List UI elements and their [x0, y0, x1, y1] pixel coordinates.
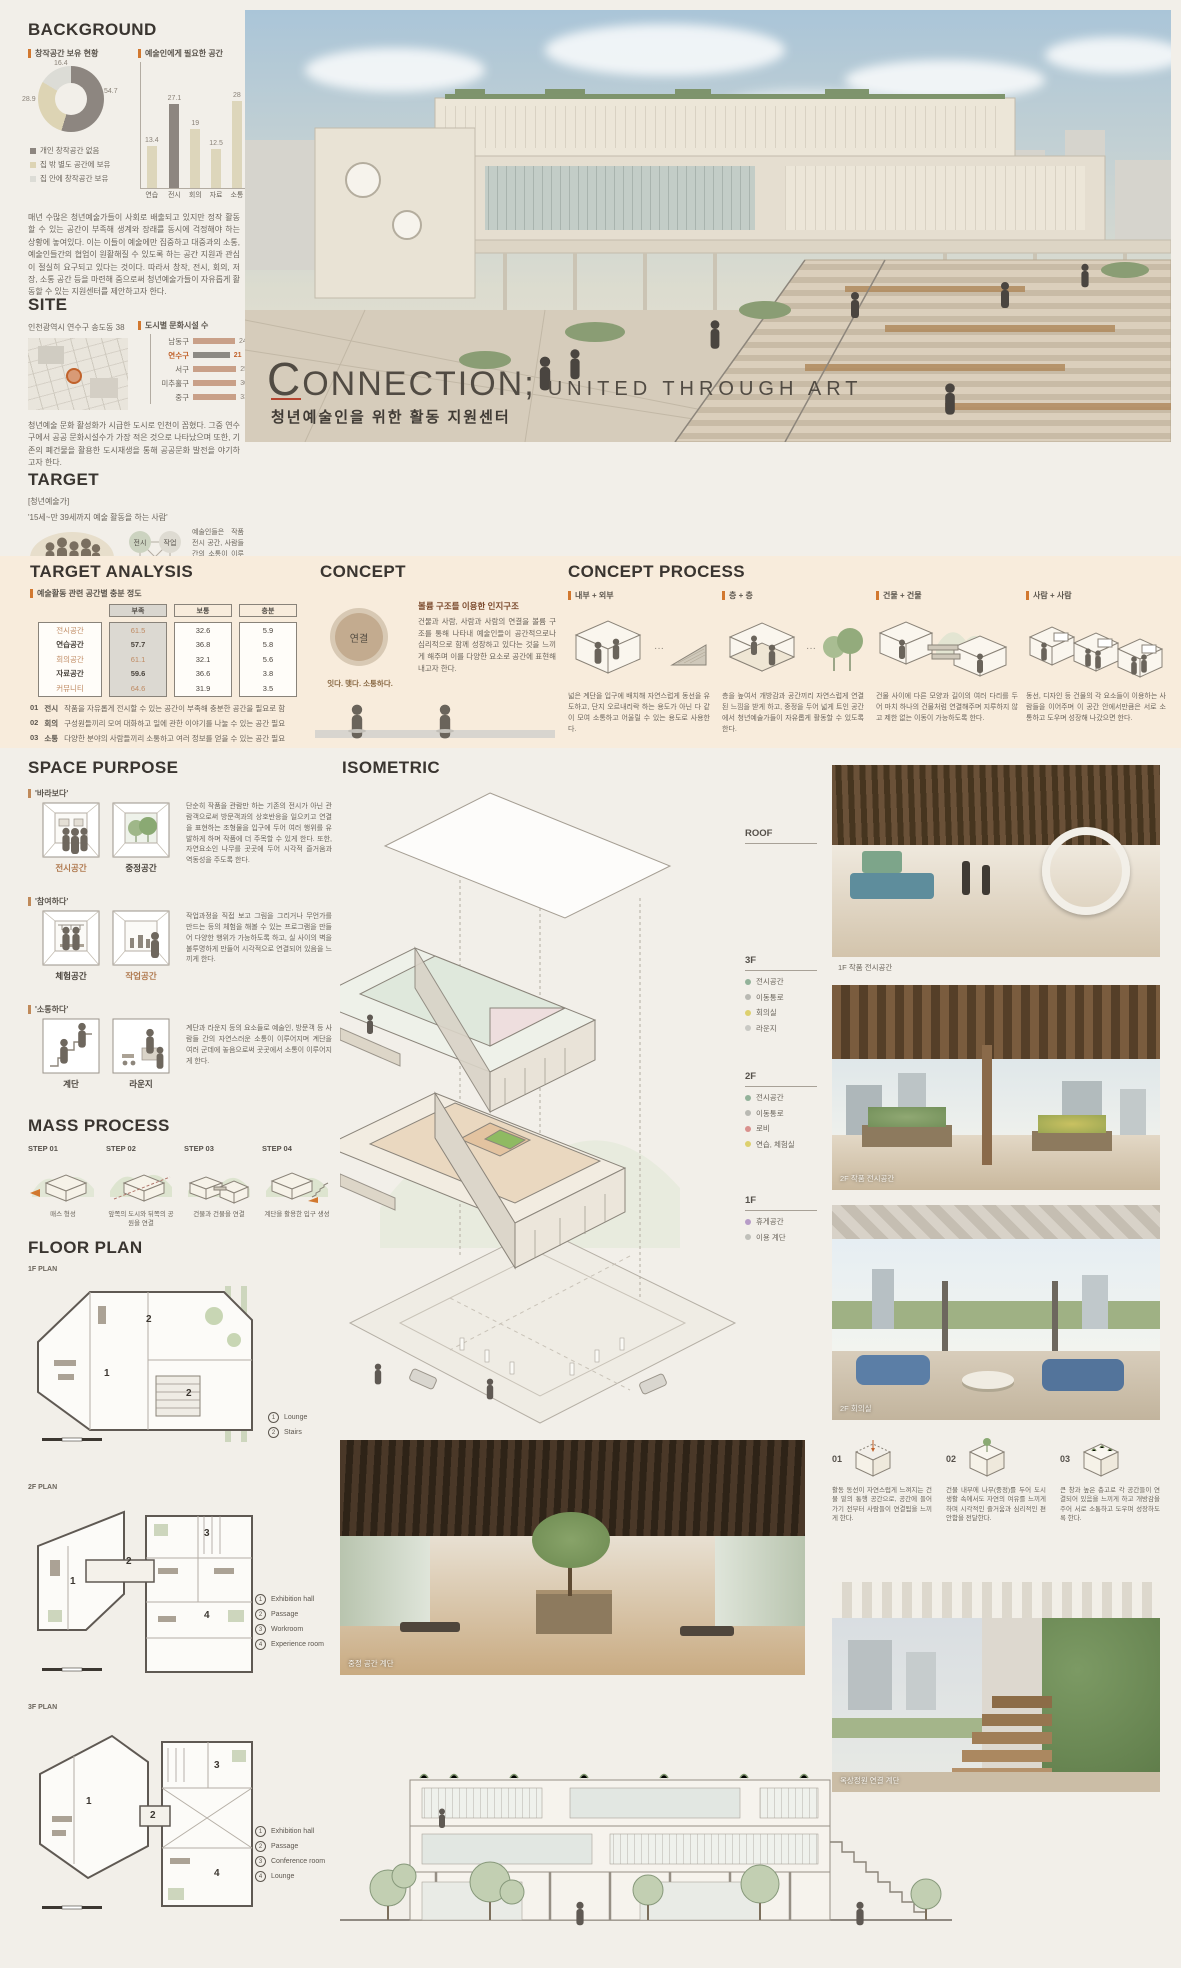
legend-dot-icon: [745, 1219, 751, 1225]
bar: [147, 146, 157, 188]
tree-cube-diagram: [964, 1438, 1010, 1480]
cp-item-inner-outer: 내부 + 외부 ··· 넓은 계단을 입구에 배치해 자연스럽게 동선을 유도하…: [568, 590, 710, 735]
plan-3f-legend: 1Exhibition hall2Passage3Conference room…: [255, 1822, 325, 1882]
legend-number-icon: 2: [268, 1427, 279, 1438]
table-value: 5.8: [240, 638, 296, 653]
label-bar-icon: [1026, 591, 1029, 600]
room-label: 작업공간: [112, 970, 170, 982]
table-value: 3.5: [240, 681, 296, 696]
center-render-caption: 중정 공간 계단: [348, 1658, 394, 1669]
bench: [680, 1626, 734, 1636]
ta-points: 01전시작품을 자유롭게 전시할 수 있는 공간이 부족해 충분한 공간을 필요…: [30, 700, 285, 744]
label-bar-icon: [28, 789, 31, 798]
mass-step-1-sketch: [28, 1153, 98, 1205]
plan-legend-item: 1Exhibition hall: [255, 1594, 324, 1605]
mass-step-4-sketch: [262, 1153, 332, 1205]
plan-2f-legend: 1Exhibition hall2Passage3Workroom4Experi…: [255, 1590, 324, 1650]
legend-dot-icon: [745, 1141, 751, 1147]
idea-caption: 건물 내부에 나무(중정)를 두어 도시 생활 속에서도 자연의 여유를 느끼게…: [946, 1486, 1046, 1524]
plan-mark: 2: [186, 1388, 192, 1399]
white-slat-ceiling: [832, 1582, 1160, 1618]
isometric-heading: ISOMETRIC: [342, 758, 440, 778]
plan-legend-item: 3Workroom: [255, 1624, 324, 1635]
bar-연습: 13.4연습: [145, 62, 159, 188]
legend-number-icon: 1: [255, 1826, 266, 1837]
concept-subtitle: 볼륨 구조를 이용한 인지구조: [418, 600, 558, 612]
cp-item-floor-floor: 층 + 층 ··· 층을 높여서 개방감과 공간끼리 자연스럽게 연결된 느낌을…: [722, 590, 864, 735]
legend-dot-icon: [745, 979, 751, 985]
plan-3f: 1 2 3 4: [28, 1718, 260, 1914]
bar-value: 12.5: [209, 140, 223, 147]
hbar-미추홀구: 미추홀구30: [153, 376, 248, 390]
wood-ceiling: [832, 765, 1160, 845]
plan-legend-item: 4Experience room: [255, 1639, 324, 1650]
concept-heading: CONCEPT: [320, 562, 406, 582]
legend-number-icon: 1: [255, 1594, 266, 1605]
donut-value: 16.4: [54, 60, 68, 67]
column-header: 부족: [109, 604, 167, 617]
table-value: 36.6: [175, 667, 231, 682]
idea-item-1: 01 활동 동선이 자연스럽게 느껴지는 건물 밑의 통행 공간으로, 공간에 …: [832, 1438, 932, 1524]
bar-전시: 27.1전시: [168, 62, 182, 188]
legend-number-icon: 2: [255, 1841, 266, 1852]
plan-2f: 1 2 3 4: [28, 1498, 260, 1678]
row-label: 자료공간: [39, 667, 101, 682]
label-bar-icon: [876, 591, 879, 600]
bar-value: 28: [233, 92, 241, 99]
donut-legend-item: 개인 창작공간 없음: [30, 145, 110, 156]
needed-space-chart-label: 예술인에게 필요한 공간: [138, 48, 223, 59]
render-1f-exhibition: [832, 765, 1160, 957]
label-bar-icon: [138, 49, 141, 58]
table-value: 3.8: [240, 667, 296, 682]
legend-dot-icon: [745, 1095, 751, 1101]
plant-wall: [1042, 1618, 1160, 1792]
visitor-silhouette: [982, 865, 990, 895]
target-tag: [청년예술가]: [28, 496, 69, 507]
poster-title: CONNECTION;UNITED THROUGH ART: [267, 352, 863, 406]
sp-text-participate: 작업과정을 직접 보고 그림을 그리거나 무언가를 만드는 등의 체험을 해볼 …: [186, 912, 332, 966]
bar-자료: 12.5자료: [209, 62, 223, 188]
creative-space-donut-chart: [38, 66, 104, 132]
plan-mark: 4: [214, 1868, 220, 1879]
plant-cube-diagram: [1078, 1438, 1124, 1480]
iso-legend-item: 이동통로: [745, 992, 817, 1003]
work-room-sketch: [112, 910, 170, 966]
plan-1f: 1 2 2: [28, 1280, 260, 1448]
bar-value: 13.4: [145, 137, 159, 144]
background-heading: BACKGROUND: [28, 20, 157, 40]
bar-value: 19: [191, 120, 199, 127]
bar-category: 전시: [168, 190, 181, 200]
hbar: [193, 380, 236, 386]
label-bar-icon: [28, 897, 31, 906]
render-2f-caption: 2F 작품 전시공간: [840, 1173, 894, 1184]
blue-sofa: [1042, 1359, 1124, 1391]
legend-number-icon: 2: [255, 1609, 266, 1620]
plan-mark: 1: [104, 1368, 110, 1379]
bar: [211, 149, 221, 188]
plan-mark: 2: [126, 1556, 132, 1567]
render-roof-caption: 옥상정원 연결 계단: [840, 1775, 899, 1786]
iso-legend-item: 회의실: [745, 1007, 817, 1018]
idea-number: 02: [946, 1454, 956, 1464]
row-label: 연습공간: [39, 638, 101, 653]
plan-3f-drawing: [28, 1718, 260, 1914]
bench: [400, 1622, 460, 1632]
floor-label: 3F: [745, 955, 817, 966]
concept-body: 건물과 사람, 사람과 사람의 연결을 볼륨 구조를 통해 나타내 예술인들이 …: [418, 616, 556, 674]
facility-chart-label: 도시별 문화시설 수: [138, 320, 208, 331]
sp-tag-participate: '참여하다': [28, 896, 68, 907]
iso-floor-3F: 3F전시공간이동통로회의실라운지: [745, 955, 817, 1034]
cp-caption: 건물 사이에 다른 모양과 길이의 여러 다리를 두어 마치 하나의 건물처럼 …: [876, 692, 1018, 725]
label-bar-icon: [722, 591, 725, 600]
node-label: 전시: [134, 538, 147, 547]
legend-swatch-icon: [30, 176, 36, 182]
cp-item-person-person: 사람 + 사람 동선, 디자인 등 건물의 각 요소들이 이용하는 사람들을 이…: [1026, 590, 1166, 725]
experience-room-sketch: [42, 910, 100, 966]
room-label: 체험공간: [42, 970, 100, 982]
iso-legend-item: 전시공간: [745, 1092, 817, 1103]
bar-category: 소통: [230, 190, 243, 200]
courtyard-render: 중정 공간 계단: [340, 1440, 805, 1675]
hbar-label: 연수구: [153, 350, 189, 361]
floor-label: 2F: [745, 1071, 817, 1082]
plan-legend-item: 1Exhibition hall: [255, 1826, 325, 1837]
room-label: 전시공간: [42, 862, 100, 874]
ta-point: 03소통다양한 분야의 사람들끼리 소통하고 여러 정보를 얻을 수 있는 공간…: [30, 733, 285, 744]
bar: [232, 101, 242, 188]
walking-people-illustration: [315, 700, 555, 742]
bar: [190, 129, 200, 188]
plan-mark: 1: [86, 1796, 92, 1807]
legend-dot-icon: [745, 1234, 751, 1240]
legend-dot-icon: [745, 994, 751, 1000]
dots: ···: [806, 643, 816, 654]
legend-number-icon: 3: [255, 1624, 266, 1635]
idea-number: 01: [832, 1454, 842, 1464]
exhibition-room-sketch: [42, 802, 100, 858]
slat-ceiling: [832, 985, 1160, 1059]
bar-소통: 28소통: [232, 62, 242, 188]
mass-step-1: STEP 01 매스 형성: [28, 1144, 98, 1228]
sp-tag-look: '바라보다': [28, 788, 68, 799]
site-heading: SITE: [28, 295, 67, 315]
floor-label: 1F: [745, 1195, 817, 1206]
open-cube-diagram: [850, 1438, 896, 1480]
title-sub: UNITED THROUGH ART: [548, 378, 863, 401]
plan-mark: 2: [150, 1810, 156, 1821]
floor-floor-diagram: ···: [722, 607, 864, 681]
ta-point: 02회의구성원들끼리 모여 대화하고 일에 관한 이야기를 나눌 수 있는 공간…: [30, 718, 285, 729]
hbar: [193, 338, 235, 344]
bar-category: 회의: [189, 190, 202, 200]
cp-caption: 동선, 디자인 등 건물의 각 요소들이 이용하는 사람들을 이어주며 이 공간…: [1026, 692, 1166, 725]
plan-mark: 3: [214, 1760, 220, 1771]
donut-value: 28.9: [22, 96, 36, 103]
plan-legend-item: 1Lounge: [268, 1412, 307, 1423]
skyline-tower: [1082, 1275, 1108, 1329]
title-accent-line: [271, 398, 301, 400]
target-quote: '15세~만 39세까지 예술 활동을 하는 사람': [28, 512, 168, 523]
iso-floor-ROOF: ROOF: [745, 828, 817, 849]
legend-number-icon: 4: [255, 1871, 266, 1882]
idea-item-3: 03 큰 창과 높은 층고로 각 공간들이 연결되어 있음을 느끼게 하고 개방…: [1060, 1438, 1160, 1524]
bar-회의: 19회의: [190, 62, 200, 188]
floor-plan-heading: FLOOR PLAN: [28, 1238, 143, 1258]
cp-item-building-building: 건물 + 건물 건물 사이에 다른 모양과 길이의 여러 다리를 두어 마치 하…: [876, 590, 1018, 725]
table-value: 61.1: [110, 652, 166, 667]
iso-legend-item: 전시공간: [745, 976, 817, 987]
title-main: CONNECTION;: [267, 352, 536, 406]
mass-process-steps: STEP 01 매스 형성 STEP 02 앞쪽의 도시와 뒤쪽의 공원을 연결…: [28, 1144, 332, 1228]
table-col-보통: 보통32.636.832.136.631.9: [174, 604, 232, 697]
ta-point: 01전시작품을 자유롭게 전시할 수 있는 공간이 부족해 충분한 공간을 필요…: [30, 703, 285, 714]
donut-value: 54.7: [104, 88, 118, 95]
hbar-중구: 중구33: [153, 390, 248, 404]
plan-1f-label: 1F PLAN: [28, 1266, 57, 1273]
row-label: 커뮤니티: [39, 681, 101, 696]
ring-sculpture: [1042, 827, 1130, 915]
mass-step-4: STEP 04 계단을 활용한 입구 생성: [262, 1144, 332, 1228]
donut-legend: 개인 창작공간 없음집 밖 별도 공간에 보유집 안에 창작공간 보유: [30, 142, 110, 184]
row-label: 전시공간: [39, 623, 101, 638]
isometric-drawing: [340, 778, 740, 1428]
planter-green: [868, 1107, 946, 1127]
skyline-tower: [872, 1269, 894, 1329]
plan-1f-drawing: [28, 1280, 260, 1448]
site-marker-icon: [66, 368, 82, 384]
iso-floor-1F: 1F휴게공간이용 계단: [745, 1195, 817, 1243]
concept-circle-outer: 연결: [330, 608, 388, 666]
blue-sofa: [856, 1355, 930, 1385]
exhibit-bench: [850, 873, 934, 899]
donut-legend-item: 집 안에 창작공간 보유: [30, 173, 110, 184]
wood-column: [982, 1045, 992, 1165]
mass-step-2-sketch: [106, 1153, 176, 1205]
table-value: 64.6: [110, 681, 166, 696]
donut-hole: [55, 83, 87, 115]
label-bar-icon: [138, 321, 141, 330]
legend-dot-icon: [745, 1110, 751, 1116]
cp-caption: 층을 높여서 개방감과 공간끼리 자연스럽게 연결된 느낌을 받게 하고, 중정…: [722, 692, 864, 735]
needed-space-bar-chart: 13.4연습27.1전시19회의12.5자료28소통: [140, 62, 245, 189]
concept-process-heading: CONCEPT PROCESS: [568, 562, 745, 582]
room-label: 라운지: [112, 1078, 170, 1090]
table-value: 32.1: [175, 652, 231, 667]
bar-category: 자료: [210, 190, 223, 200]
concept-circle-caption: 잇다. 맺다. 소통하다.: [312, 678, 408, 689]
legend-number-icon: 4: [255, 1639, 266, 1650]
legend-dot-icon: [745, 1025, 751, 1031]
legend-dot-icon: [745, 1126, 751, 1132]
column-header: 충분: [239, 604, 297, 617]
idea-row: 01 활동 동선이 자연스럽게 느껴지는 건물 밑의 통행 공간으로, 공간에 …: [832, 1438, 1160, 1524]
room-label: 중정공간: [112, 862, 170, 874]
label-bar-icon: [28, 1005, 31, 1014]
bar-category: 연습: [145, 190, 158, 200]
site-map: [28, 338, 128, 410]
table-value: 59.6: [110, 667, 166, 682]
row-label: 회의공간: [39, 652, 101, 667]
glass-wall: [832, 1239, 1160, 1351]
donut-legend-item: 집 밖 별도 공간에 보유: [30, 159, 110, 170]
hbar-label: 남동구: [153, 336, 189, 347]
label-bar-icon: [30, 589, 33, 598]
hbar-value: 21: [234, 352, 242, 359]
planter-flowers: [1038, 1115, 1106, 1133]
stair-sketch: [42, 1018, 100, 1074]
hbar: [193, 394, 236, 400]
table-col-부족: 부족61.557.761.159.664.6: [109, 604, 167, 697]
iso-legend-item: 연습, 체험실: [745, 1139, 817, 1150]
person-person-diagram: [1026, 607, 1166, 681]
lounge-sketch: [112, 1018, 170, 1074]
plan-legend-item: 2Stairs: [268, 1427, 307, 1438]
mass-step-3-sketch: [184, 1153, 254, 1205]
idea-caption: 큰 창과 높은 층고로 각 공간들이 연결되어 있음을 느끼게 하고 개방감을 …: [1060, 1486, 1160, 1524]
legend-dot-icon: [745, 1010, 751, 1016]
hero-render: CONNECTION;UNITED THROUGH ART 청년예술인을 위한 …: [245, 10, 1171, 442]
courtyard-room-sketch: [112, 802, 170, 858]
facility-count-bar-chart: 남동구24연수구21서구25미추홀구30중구33: [150, 334, 248, 404]
plan-mark: 1: [70, 1576, 76, 1587]
tree-canopy: [532, 1512, 610, 1568]
mass-process-heading: MASS PROCESS: [28, 1116, 170, 1136]
concept-circle: 연결: [335, 613, 383, 661]
planter: [536, 1590, 612, 1634]
label-bar-icon: [568, 591, 571, 600]
map-block: [90, 378, 118, 398]
plan-legend-item: 2Passage: [255, 1841, 325, 1852]
bar: [169, 104, 179, 188]
ta-table-label: 예술활동 관련 공간별 충분 정도: [30, 588, 142, 599]
table-value: 32.6: [175, 623, 231, 638]
render-2f-exhibition: 2F 작품 전시공간: [832, 985, 1160, 1190]
glass-left: [340, 1536, 430, 1626]
plan-mark: 4: [204, 1610, 210, 1621]
planter: [1032, 1131, 1112, 1151]
iso-legend-item: 휴게공간: [745, 1216, 817, 1227]
background-body: 매년 수많은 청년예술가들이 사회로 배출되고 있지만 정작 활동할 수 있는 …: [28, 212, 240, 299]
exhibit-plant: [862, 851, 902, 873]
column-header: 보통: [174, 604, 232, 617]
plan-2f-label: 2F PLAN: [28, 1484, 57, 1491]
table-value: 5.9: [240, 623, 296, 638]
iso-legend-item: 이동통로: [745, 1108, 817, 1119]
plan-3f-label: 3F PLAN: [28, 1704, 57, 1711]
site-body: 청년예술 문화 활성화가 시급한 도시로 인천이 꼽혔다. 그중 연수구에서 공…: [28, 420, 240, 470]
table-value: 61.5: [110, 623, 166, 638]
render-roof-garden-stairs: 옥상정원 연결 계단: [832, 1582, 1160, 1792]
space-purpose-heading: SPACE PURPOSE: [28, 758, 178, 778]
hbar: [193, 366, 236, 372]
planter: [862, 1125, 952, 1147]
iso-legend-item: 라운지: [745, 1023, 817, 1034]
visitor-silhouette: [962, 861, 970, 895]
iso-floor-2F: 2F전시공간이동통로로비연습, 체험실: [745, 1071, 817, 1150]
building-building-diagram: [876, 607, 1018, 681]
city-building: [848, 1640, 892, 1710]
render-1f-caption: 1F 작품 전시공간: [838, 962, 892, 973]
table-value: 57.7: [110, 638, 166, 653]
cp-caption: 넓은 계단을 입구에 배치해 자연스럽게 동선을 유도하고, 단지 오르내리락 …: [568, 692, 710, 735]
iso-legend-item: 이용 계단: [745, 1232, 817, 1243]
map-block: [38, 346, 64, 364]
target-analysis-heading: TARGET ANALYSIS: [30, 562, 193, 582]
sp-text-look: 단순히 작품을 관람만 하는 기존의 전시가 아닌 관람객으로써 방문객과의 상…: [186, 802, 332, 867]
hbar-남동구: 남동구24: [153, 334, 248, 348]
bar-value: 27.1: [168, 95, 182, 102]
hbar-서구: 서구25: [153, 362, 248, 376]
mass-step-3: STEP 03 건물과 건물을 연결: [184, 1144, 254, 1228]
label-bar-icon: [28, 49, 31, 58]
table-value: 31.9: [175, 681, 231, 696]
hbar-label: 미추홀구: [153, 378, 189, 389]
legend-number-icon: 3: [255, 1856, 266, 1867]
table-col-충분: 충분5.95.85.63.83.5: [239, 604, 297, 697]
plan-legend-item: 3Conference room: [255, 1856, 325, 1867]
floor-label: ROOF: [745, 828, 817, 839]
mass-step-2: STEP 02 앞쪽의 도시와 뒤쪽의 공원을 연결: [106, 1144, 176, 1228]
legend-swatch-icon: [30, 162, 36, 168]
idea-caption: 활동 동선이 자연스럽게 느껴지는 건물 밑의 통행 공간으로, 공간에 들어가…: [832, 1486, 932, 1524]
inner-outer-diagram: ···: [568, 607, 710, 681]
legend-number-icon: 1: [268, 1412, 279, 1423]
hbar-label: 서구: [153, 364, 189, 375]
plan-1f-legend: 1Lounge2Stairs: [268, 1408, 307, 1438]
room-label: 계단: [42, 1078, 100, 1090]
ownership-chart-label: 창작공간 보유 현황: [28, 48, 98, 59]
render-2f-meeting: 2F 회의실: [832, 1205, 1160, 1420]
city-building: [1120, 1089, 1146, 1135]
hbar-연수구: 연수구21: [153, 348, 248, 362]
idea-item-2: 02 건물 내부에 나무(중정)를 두어 도시 생활 속에서도 자연의 여유를 …: [946, 1438, 1046, 1524]
plan-legend-item: 2Passage: [255, 1609, 324, 1620]
node-label: 작업: [164, 538, 177, 547]
table-row-labels: 전시공간연습공간회의공간자료공간커뮤니티: [38, 604, 102, 697]
hbar: [193, 352, 230, 358]
render-meeting-caption: 2F 회의실: [840, 1403, 872, 1414]
poster-subtitle: 청년예술인을 위한 활동 지원센터: [271, 406, 511, 427]
sp-text-communicate: 계단과 라운지 등의 요소들로 예술인, 방문객 등 사람들 간의 자연스러운 …: [186, 1024, 332, 1067]
target-heading: TARGET: [28, 470, 99, 490]
plan-mark: 3: [204, 1528, 210, 1539]
hbar-label: 중구: [153, 392, 189, 403]
dots: ···: [654, 643, 664, 654]
legend-swatch-icon: [30, 148, 36, 154]
round-table: [962, 1371, 1014, 1389]
plan-2f-drawing: [28, 1498, 260, 1678]
poster-board: { "background": { "heading": "BACKGROUND…: [0, 0, 1181, 1968]
sp-tag-communicate: '소통하다': [28, 1004, 68, 1015]
table-value: 36.8: [175, 638, 231, 653]
sufficiency-table: 전시공간연습공간회의공간자료공간커뮤니티부족61.557.761.159.664…: [38, 604, 297, 697]
plan-mark: 2: [146, 1314, 152, 1325]
plan-legend-item: 4Lounge: [255, 1871, 325, 1882]
iso-legend-item: 로비: [745, 1123, 817, 1134]
pattern-ceiling: [832, 1205, 1160, 1239]
table-value: 5.6: [240, 652, 296, 667]
glass-right: [715, 1536, 805, 1626]
site-address: 인천광역시 연수구 송도동 38: [28, 322, 125, 333]
city-building: [906, 1652, 936, 1710]
idea-number: 03: [1060, 1454, 1070, 1464]
